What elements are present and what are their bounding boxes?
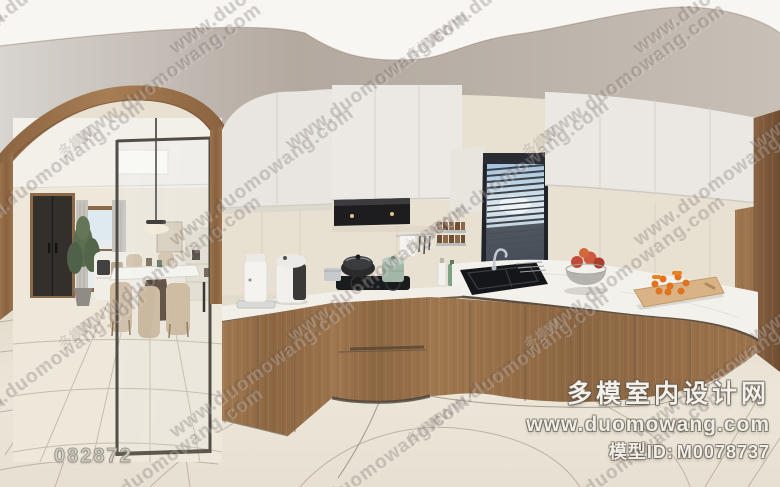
- steamer-pot: [382, 256, 404, 282]
- upper-cabinets-center: [332, 85, 462, 200]
- arch-left-jamb: [0, 152, 13, 320]
- drawer-handle: [350, 347, 424, 349]
- door-handle: [48, 243, 50, 253]
- glass-sliding-door: [112, 137, 211, 456]
- fruit: [571, 256, 583, 268]
- panorama-screenshot: 多模网www.duomowang.comwww.duomowang.com多模网…: [0, 0, 780, 487]
- footer-site-url: www.duomowang.com: [526, 413, 770, 436]
- fruit: [579, 248, 589, 258]
- range-hood: [334, 198, 410, 226]
- rice-cooker: [274, 254, 308, 305]
- small-pot: [324, 268, 341, 281]
- footer-site-name: 多模室内设计网: [526, 381, 770, 409]
- sofa-pillow: [97, 260, 110, 275]
- upper-cabinet-window-left: [450, 146, 486, 216]
- drawer-bank: [332, 297, 430, 402]
- upper-cabinets-left: [222, 90, 332, 214]
- fruit: [594, 258, 605, 269]
- arch-right-jamb: [210, 126, 222, 304]
- window-valance: [483, 153, 548, 164]
- footer-model-id: 模型ID:M0078737: [526, 442, 770, 463]
- footer-model-label: 模型ID:: [609, 442, 674, 462]
- footer-model-value: M0078737: [677, 442, 770, 462]
- footer-image-id: 082872: [54, 445, 133, 468]
- door-handle: [55, 243, 57, 253]
- footer-brand-block: 多模室内设计网 www.duomowang.com 模型ID:M0078737: [526, 381, 770, 462]
- entry-door: [30, 193, 75, 298]
- kitchen-window: [481, 152, 548, 273]
